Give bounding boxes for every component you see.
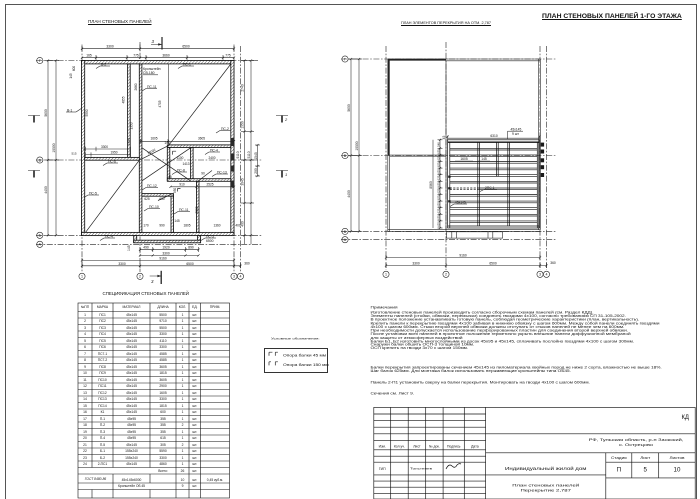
svg-text:ГИП: ГИП <box>379 467 386 471</box>
svg-text:Кол.уч.: Кол.уч. <box>394 444 405 448</box>
svg-text:Индивидуальный жилой дом: Индивидуальный жилой дом <box>505 466 587 472</box>
svg-text:Стадия: Стадия <box>611 456 627 460</box>
svg-text:Перекрытие 2,787: Перекрытие 2,787 <box>520 488 571 493</box>
svg-text:№ док.: № док. <box>429 444 440 448</box>
svg-text:КД: КД <box>681 415 689 421</box>
svg-text:5: 5 <box>643 467 647 474</box>
svg-text:План стеновых панелей: План стеновых панелей <box>512 483 579 488</box>
svg-text:Подпись: Подпись <box>447 444 461 448</box>
svg-text:РФ, Тульская область, р-н Заок: РФ, Тульская область, р-н Заокский, <box>589 437 684 442</box>
svg-text:П: П <box>617 467 621 474</box>
svg-text:10: 10 <box>674 467 681 474</box>
svg-text:Листов: Листов <box>670 456 685 460</box>
svg-text:Дата: Дата <box>471 444 479 448</box>
svg-text:Толстенев: Толстенев <box>410 466 432 470</box>
svg-text:Лист: Лист <box>640 456 650 460</box>
svg-text:с. Острецово: с. Острецово <box>619 443 654 448</box>
svg-text:Изм.: Изм. <box>379 444 386 448</box>
svg-text:Лист: Лист <box>413 444 421 448</box>
